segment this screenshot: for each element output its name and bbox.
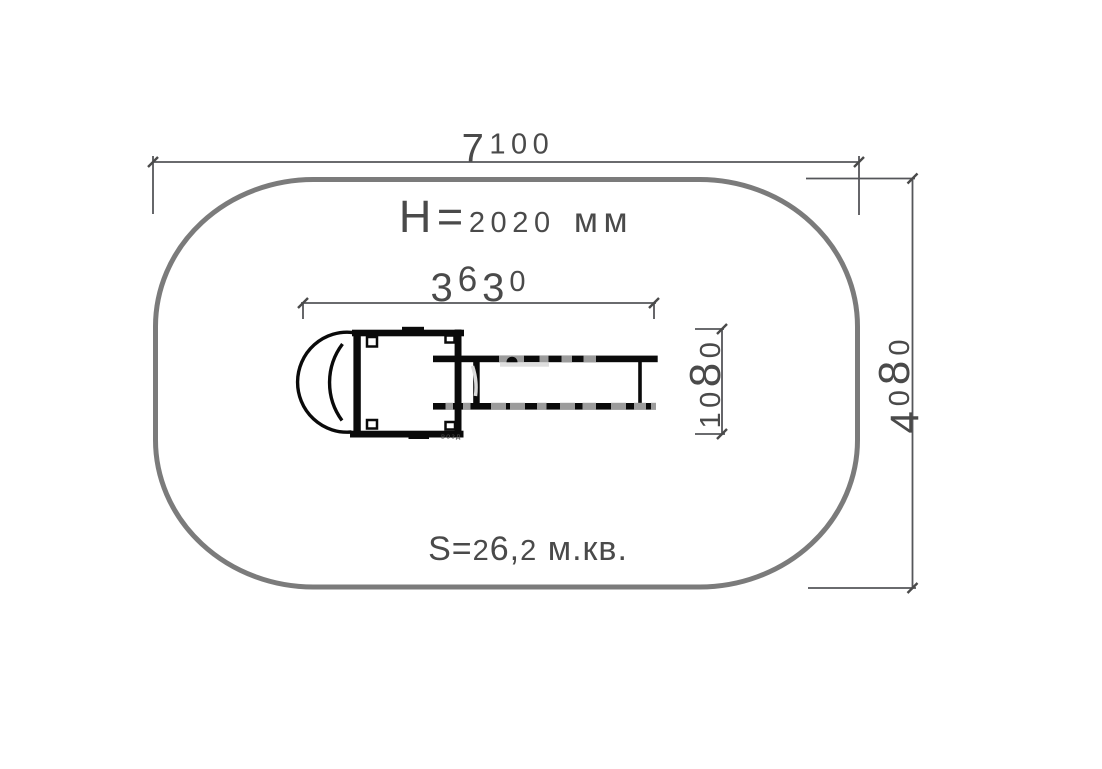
svg-text:S=26,2 м.кв.: S=26,2 м.кв. <box>428 530 628 568</box>
svg-text:возд: возд <box>441 431 461 440</box>
